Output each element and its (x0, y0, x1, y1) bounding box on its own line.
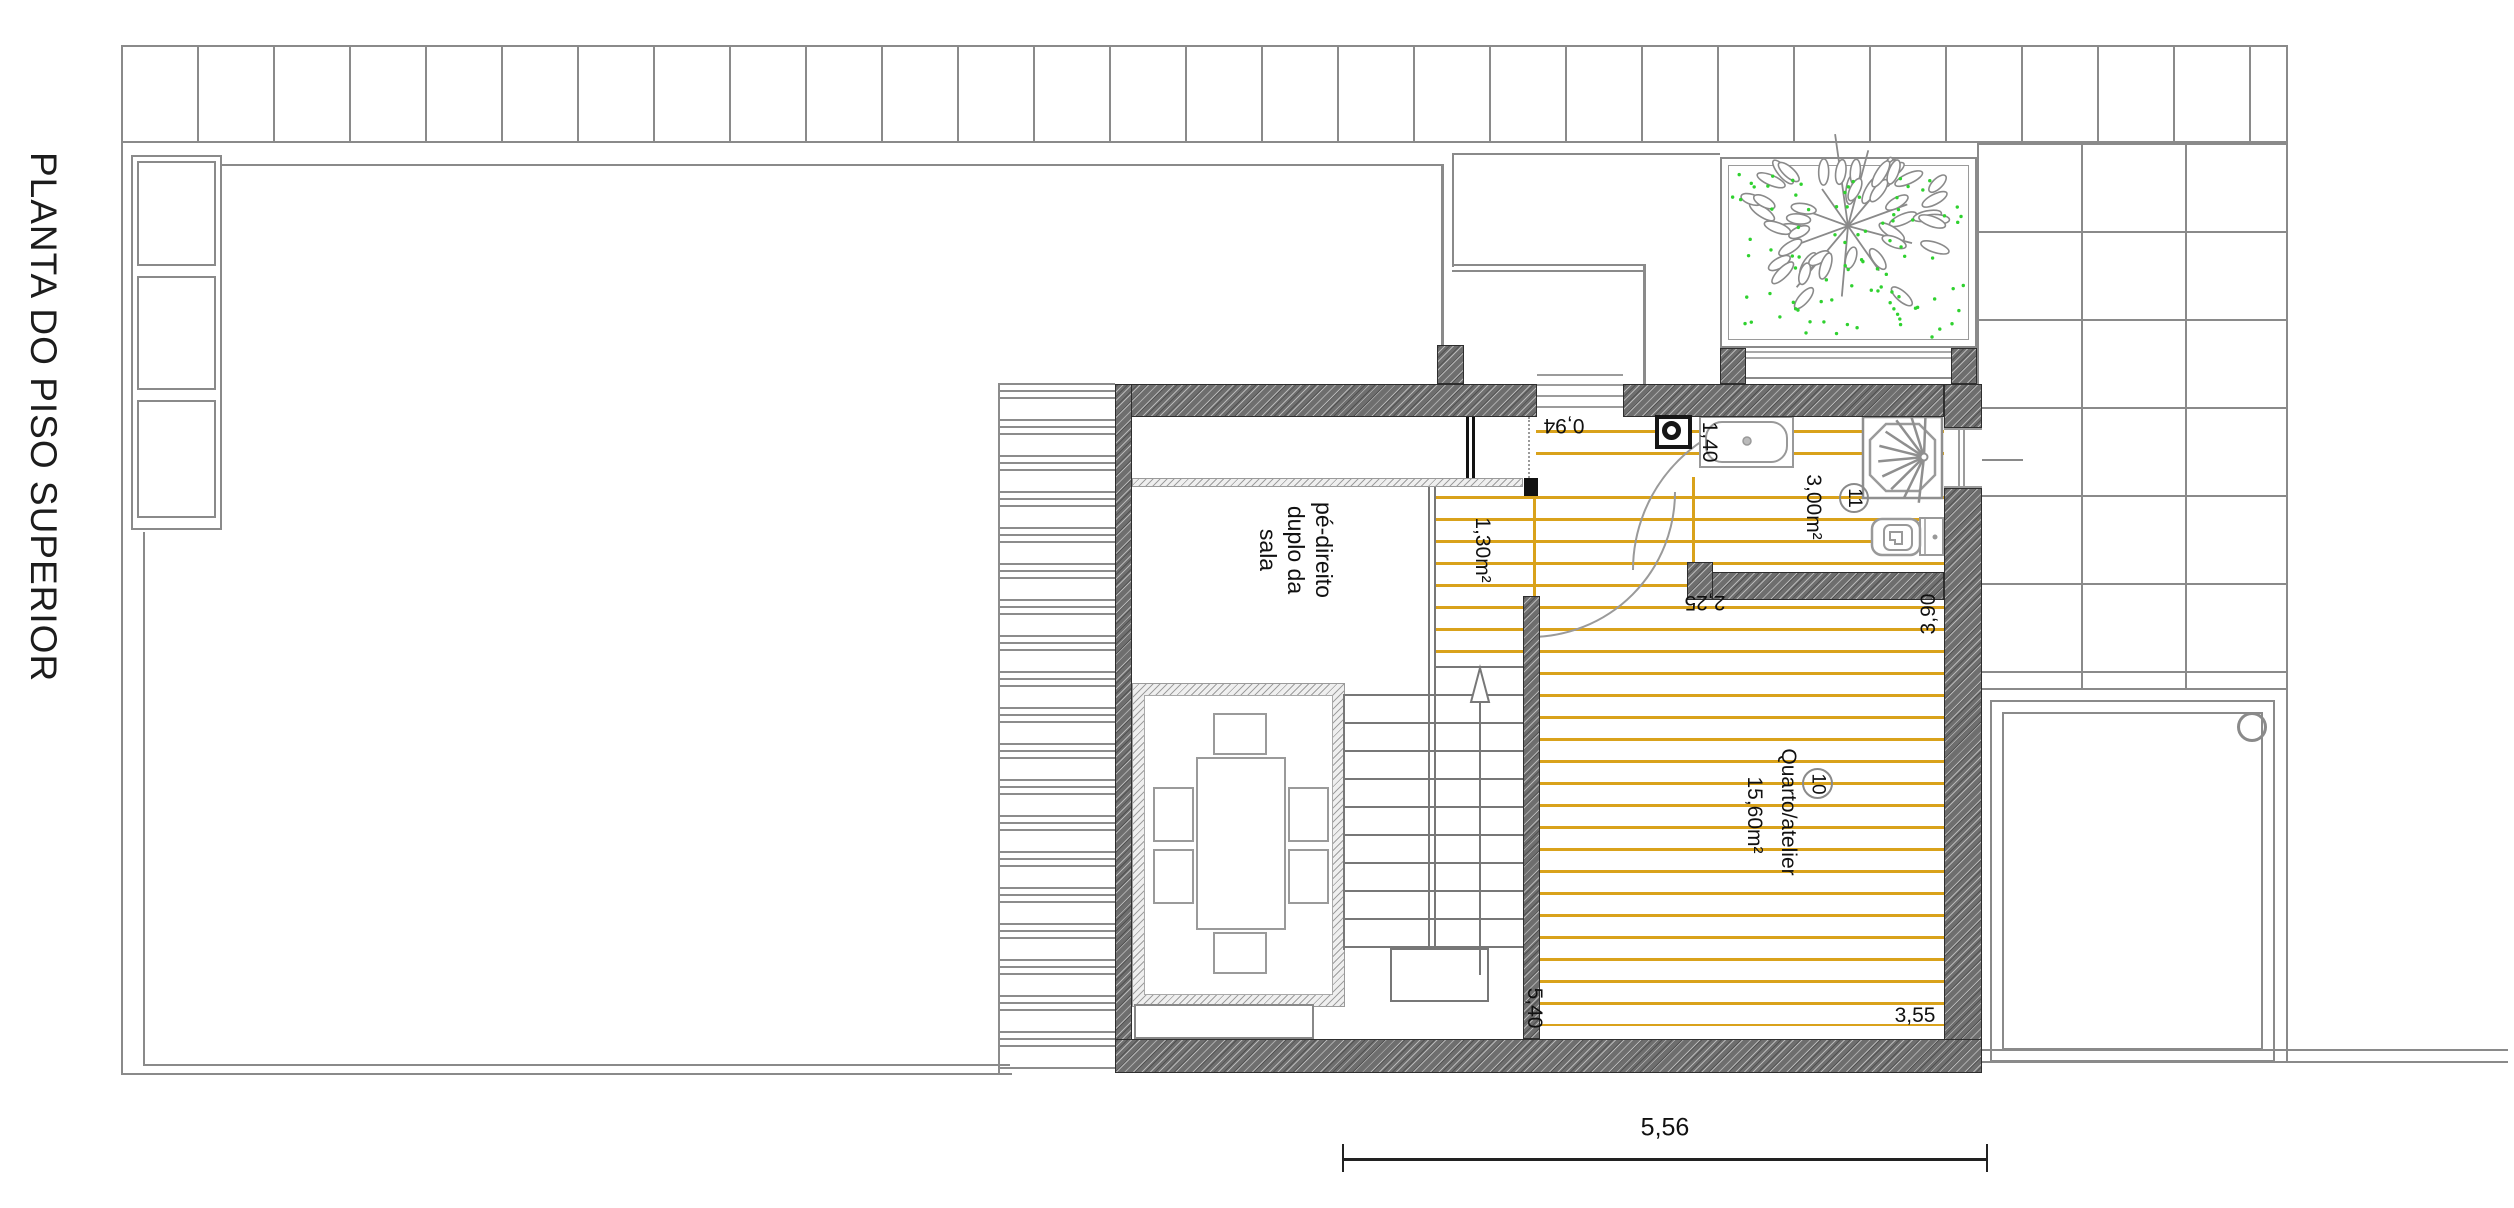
chair (1153, 849, 1194, 904)
window-glazing (1537, 395, 1623, 397)
dim-overall-width: 5,56 (1641, 1114, 1690, 1143)
stair-stringer (1428, 487, 1430, 948)
wood-floor-corridor (1536, 415, 1944, 478)
dim-sink-wall: 1,40 (1697, 422, 1721, 463)
wood-joint (1692, 477, 1695, 572)
stair-treads (1343, 694, 1523, 950)
lot-bottom-line (121, 1073, 1012, 1075)
wall-pier (1437, 345, 1464, 384)
dim-bedroom-width: 3,55 (1895, 1004, 1936, 1028)
window-frame (1944, 486, 1982, 488)
planter-cell (137, 276, 216, 390)
wall-bottom (1115, 1039, 1982, 1073)
patio-glazing-line (1746, 357, 1952, 359)
lot-right-line (2286, 690, 2288, 1062)
window-glazing (1537, 384, 1623, 386)
wall-top-left (1115, 384, 1537, 417)
bedroom-name-label: Quarto/atelier (1776, 748, 1800, 875)
wall-patio-block (1951, 348, 1977, 384)
roof-drain-circle (2237, 712, 2267, 742)
dim-line (1343, 1158, 1988, 1161)
wall-patio-block (1720, 348, 1746, 384)
stair-winder (1390, 948, 1489, 1002)
wall-right-lower (1944, 488, 1982, 1073)
wall-top-right (1623, 384, 1944, 417)
patio-inner-top-line (222, 164, 1443, 166)
planter-cell (137, 161, 216, 266)
patio-edge-line (1746, 377, 1952, 379)
vestibule-line (1452, 264, 1643, 266)
dim-bedroom-length: 5,40 (1522, 988, 1546, 1029)
door-jamb (1524, 478, 1538, 496)
window-frame (1944, 428, 1982, 430)
floor-plan-canvas: PLANTA DO PISO SUPERIOR (0, 0, 2514, 1208)
top-tile-band (121, 45, 2288, 143)
terrace-inner (2002, 712, 2263, 1050)
right-tile-grid (1977, 143, 2288, 690)
chair (1288, 787, 1329, 842)
room-number-bathroom: 11 (1839, 483, 1869, 513)
dim-tick (1342, 1144, 1344, 1172)
vestibule-line (1452, 153, 1454, 267)
wall-bathroom-south (1687, 572, 1944, 600)
stair-landing-edge (1434, 666, 1523, 668)
bathroom-area-label: 3,00m² (1801, 474, 1825, 539)
pergola-deck (998, 383, 1115, 1073)
chair (1153, 787, 1194, 842)
wall-right-upper (1944, 384, 1982, 428)
terrace-joint-line (1982, 459, 2023, 461)
dim-bedroom-depth: 3,90 (1917, 594, 1941, 635)
chair (1213, 713, 1267, 755)
void-ledge (1134, 1004, 1314, 1039)
window-glazing (1963, 428, 1965, 488)
dining-table (1196, 757, 1286, 930)
duct-pipe (1662, 421, 1681, 440)
patio-inner-bottom-line (143, 1064, 1010, 1066)
chair (1213, 932, 1267, 974)
boundary-line-right (1982, 1049, 2508, 1051)
closet-thin-wall (1132, 478, 1523, 487)
void-label: pé-direito duplo da sala (1254, 502, 1338, 598)
patio-inner-left-line (143, 532, 145, 1066)
window-glazing (1537, 406, 1623, 408)
patio-glazing-line (1746, 351, 1952, 353)
room-number-bedroom: 10 (1802, 768, 1833, 799)
wall-stair (1523, 596, 1540, 1039)
window-glazing (1958, 428, 1960, 488)
wall-left (1115, 384, 1132, 1073)
chair (1288, 849, 1329, 904)
closet-divider (1466, 417, 1469, 478)
stair-stringer (1434, 487, 1436, 948)
vestibule-line (1452, 153, 1720, 155)
planter-cell (137, 400, 216, 518)
closet-divider (1472, 417, 1475, 478)
vestibule-line (1643, 264, 1646, 384)
tree-patio-inner (1728, 165, 1969, 340)
vestibule-line (1441, 164, 1444, 345)
dim-tick (1986, 1144, 1988, 1172)
boundary-line-right (1982, 1061, 2508, 1063)
stair-left-edge (1343, 694, 1345, 950)
lot-left-line (121, 143, 123, 1075)
window-glazing (1537, 374, 1623, 376)
roof-duct (1655, 415, 1692, 449)
dim-opening: 0,94 (1544, 413, 1585, 437)
dim-bathroom-width: 2,25 (1685, 590, 1726, 614)
page-title: PLANTA DO PISO SUPERIOR (22, 152, 64, 682)
bedroom-area-label: 15,60m² (1742, 776, 1766, 853)
wood-joint (1533, 497, 1536, 596)
opening-dashed-line (1528, 417, 1530, 478)
landing-area-label: 1,30m² (1470, 517, 1494, 582)
wood-floor-landing (1434, 600, 1523, 668)
vestibule-line (1452, 270, 1643, 272)
